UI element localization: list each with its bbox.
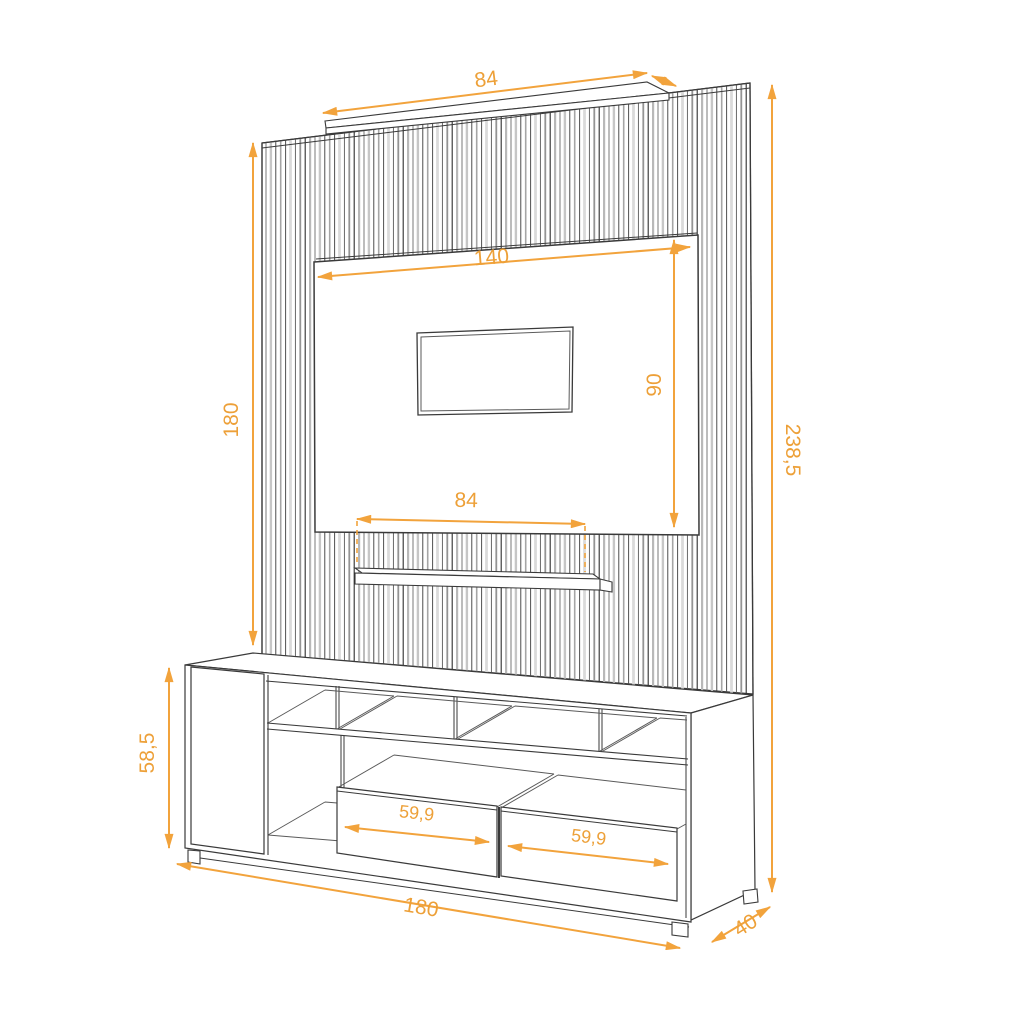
dim-total-height: 238,5 <box>772 85 804 892</box>
foot-back-right <box>743 889 758 904</box>
dim-label-cabinet-height: 58,5 <box>136 733 159 774</box>
dim-slat-panel-height: 180 <box>220 143 253 645</box>
dim-label-slat-panel-height: 180 <box>220 402 243 437</box>
dim-cabinet-depth: 40 <box>712 907 770 942</box>
technical-drawing-canvas: 84 140 90 84 180 238,5 58,5 59,9 59,9 18… <box>0 0 1024 1024</box>
tv-panel <box>314 233 699 535</box>
dim-label-drawer-left-width: 59,9 <box>398 801 435 825</box>
dim-label-top-shelf-width: 84 <box>473 67 499 93</box>
cabinet-right-side <box>691 695 755 920</box>
cabinet-door <box>191 667 264 854</box>
dim-top-shelf-depth-arrow <box>652 76 676 86</box>
dim-label-middle-shelf-width: 84 <box>454 489 478 513</box>
dim-label-total-height: 238,5 <box>781 424 804 477</box>
foot-front-left <box>188 850 200 864</box>
drawing-page: 84 140 90 84 180 238,5 58,5 59,9 59,9 18… <box>0 0 1024 1024</box>
dim-cabinet-height: 58,5 <box>136 668 169 848</box>
dim-label-tv-panel-height: 90 <box>643 373 666 396</box>
dim-label-tv-panel-width: 140 <box>473 245 510 271</box>
dim-label-total-width: 180 <box>402 893 440 922</box>
foot-front-right <box>672 922 688 937</box>
dim-label-drawer-right-width: 59,9 <box>570 825 607 849</box>
tv-cabinet <box>185 653 758 937</box>
